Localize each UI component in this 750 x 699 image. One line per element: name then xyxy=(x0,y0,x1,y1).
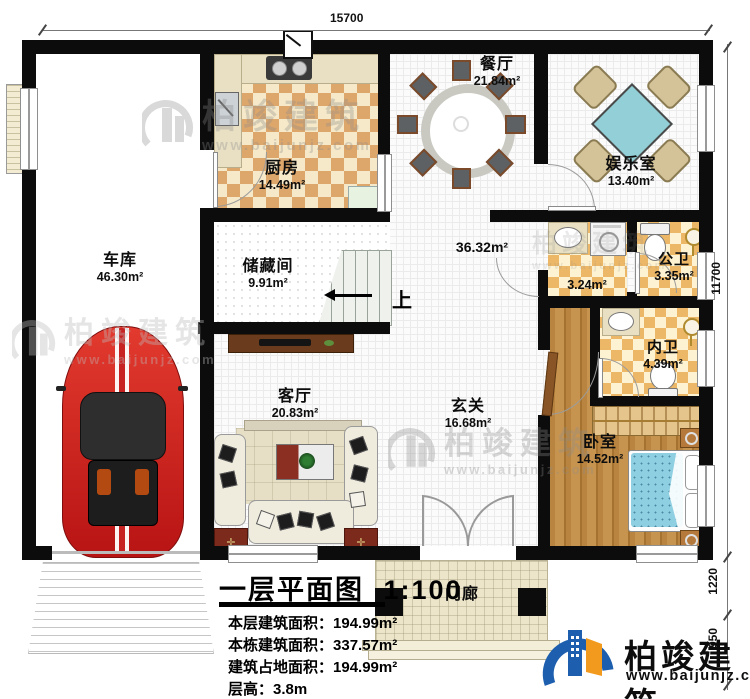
sofa-cushion xyxy=(220,471,238,489)
wall-left xyxy=(22,168,36,560)
bed-icon xyxy=(628,450,704,532)
room-label-garage: 车库 46.30m² xyxy=(97,252,144,284)
room-name: 厨房 xyxy=(259,160,306,178)
dimension-right-mid: 1220 xyxy=(706,568,720,595)
chair-icon xyxy=(452,168,471,189)
porch-column xyxy=(518,588,546,616)
chair-icon xyxy=(397,115,418,134)
sink-icon xyxy=(554,227,582,248)
wall-kitchen-dining xyxy=(378,54,390,154)
dimension-line-right xyxy=(727,44,728,690)
garage-driveway-ramp xyxy=(28,562,214,654)
room-label-storage: 储藏间 9.91m² xyxy=(242,258,293,290)
stat-row: 本栋建筑面积：337.57m² xyxy=(228,634,397,655)
wall-dining-entertainment xyxy=(534,54,548,164)
room-area: 9.91m² xyxy=(242,276,293,290)
stat-label: 建筑占地面积： xyxy=(228,659,333,676)
kitchen-sink-icon xyxy=(215,92,239,126)
wall-right xyxy=(699,150,713,252)
room-area: 20.83m² xyxy=(272,406,319,420)
car-windshield xyxy=(80,392,166,460)
stat-row: 建筑占地面积：194.99m² xyxy=(228,656,397,677)
floor-plan: 15700 11700 1220 950 xyxy=(0,0,750,699)
car-mirror xyxy=(178,386,188,391)
window-bedroom-bottom xyxy=(636,545,698,563)
wall-bath-mid xyxy=(538,296,699,308)
room-label-public-bath: 公卫 3.35m² xyxy=(654,252,694,283)
wall-right xyxy=(699,40,713,85)
room-label-living: 客厅 20.83m² xyxy=(272,388,319,420)
sofa-cushion xyxy=(297,511,314,528)
plant-icon xyxy=(299,453,315,469)
room-label-dining: 餐厅 21.84m² xyxy=(474,56,521,88)
flue-box xyxy=(283,30,313,59)
garage-door-line xyxy=(52,551,200,554)
wall-garage-kitchen xyxy=(200,54,214,150)
coffee-table-icon xyxy=(276,444,334,480)
tv-icon xyxy=(259,339,311,346)
window-entertainment xyxy=(697,85,715,152)
wall-bottom xyxy=(696,546,713,560)
wall-hall-corridor xyxy=(538,270,548,296)
wall-corridor-publicbath xyxy=(627,222,637,252)
nightstand-icon xyxy=(680,428,701,448)
room-name: 娱乐室 xyxy=(605,156,656,174)
room-name: 卧室 xyxy=(577,434,624,452)
nightstand-knob xyxy=(685,432,698,445)
chair-icon xyxy=(452,60,471,81)
engine-detail xyxy=(97,469,111,495)
wall-garage-hall xyxy=(200,208,214,546)
dimension-line-top xyxy=(42,30,710,31)
car-mirror xyxy=(56,386,66,391)
room-label-corridor-area: 3.24m² xyxy=(567,278,607,292)
company-logo-text: 柏竣建筑 xyxy=(624,630,750,699)
stat-label: 本栋建筑面积： xyxy=(228,637,333,654)
heater-pipe xyxy=(690,334,692,346)
stairs-arrow-head xyxy=(324,289,335,301)
stat-row: 本层建筑面积：194.99m² xyxy=(228,612,397,633)
room-area: 3.24m² xyxy=(567,278,607,292)
room-name: 车库 xyxy=(97,252,144,270)
table-center xyxy=(453,116,469,132)
room-area: 14.49m² xyxy=(259,178,306,192)
tv-console xyxy=(228,334,354,353)
wall-top xyxy=(22,40,713,54)
window-garage-left xyxy=(20,88,38,170)
window-bedroom-right xyxy=(697,465,715,527)
dimension-right-main: 11700 xyxy=(709,262,723,295)
room-area: 16.68m² xyxy=(445,416,492,430)
kitchen-pass-window xyxy=(377,154,392,212)
wall-bottom xyxy=(316,546,420,560)
flue-mark xyxy=(286,34,301,46)
room-area: 4.39m² xyxy=(643,357,683,371)
wall-bottom xyxy=(200,546,228,560)
kitchen-door-leaf xyxy=(213,152,218,208)
stat-row: 层高：3.8m xyxy=(228,678,307,699)
title-underline xyxy=(219,602,385,607)
wall-privatebath-bottom xyxy=(590,396,699,406)
burner-icon xyxy=(292,61,307,76)
room-name: 储藏间 xyxy=(242,258,293,276)
chair-icon xyxy=(505,115,526,134)
wall-bath-top xyxy=(490,210,713,222)
plan-title-text: 一层平面图 xyxy=(219,575,364,605)
room-name: 玄关 xyxy=(445,398,492,416)
stove-icon xyxy=(266,56,312,80)
room-label-entertainment: 娱乐室 13.40m² xyxy=(605,156,656,188)
room-area: 21.84m² xyxy=(474,74,521,88)
wall-right xyxy=(699,385,713,465)
stat-value: 337.57m² xyxy=(333,637,397,654)
wardrobe-rod xyxy=(593,420,700,422)
room-name: 餐厅 xyxy=(474,56,521,74)
stairs-arrow-line xyxy=(334,294,372,297)
room-label-kitchen: 厨房 14.49m² xyxy=(259,160,306,192)
stat-label: 本层建筑面积： xyxy=(228,615,333,632)
room-name: 内卫 xyxy=(643,340,683,357)
entry-double-door xyxy=(418,486,518,547)
wall-right xyxy=(699,298,713,330)
room-name: 公卫 xyxy=(654,252,694,269)
wall-foyer-bedroom xyxy=(538,306,550,350)
room-area: 13.40m² xyxy=(605,174,656,188)
burner-icon xyxy=(272,61,287,76)
wall-bottom xyxy=(22,546,52,560)
washer-drum xyxy=(599,232,619,252)
sofa-cushion xyxy=(349,491,366,508)
washer-panel xyxy=(593,225,621,228)
private-bath-door-leaf xyxy=(598,358,603,398)
car-icon xyxy=(62,326,182,556)
entertainment-door-leaf xyxy=(548,206,596,211)
room-area: 36.32m² xyxy=(456,240,508,256)
wall-left xyxy=(22,40,36,88)
wall-storage-living xyxy=(198,322,390,334)
sink-icon xyxy=(608,312,634,331)
public-bath-door-leaf xyxy=(635,252,640,294)
stairs-up-label: 上 xyxy=(392,284,412,313)
sink-detail xyxy=(218,99,234,116)
company-logo-icon xyxy=(538,618,620,696)
room-area: 46.30m² xyxy=(97,270,144,284)
dimension-top-value: 15700 xyxy=(330,11,363,25)
car-engine xyxy=(88,460,158,526)
room-area: 3.35m² xyxy=(654,269,694,283)
engine-detail xyxy=(135,469,149,495)
room-label-foyer: 玄关 16.68m² xyxy=(445,398,492,430)
stat-value: 3.8m xyxy=(273,681,307,698)
wall-bottom xyxy=(516,546,636,560)
stat-value: 194.99m² xyxy=(333,615,397,632)
window-private-bath xyxy=(697,330,715,387)
stat-value: 194.99m² xyxy=(333,659,397,676)
room-area: 14.52m² xyxy=(577,452,624,466)
washing-machine-icon xyxy=(590,222,626,256)
room-name: 客厅 xyxy=(272,388,319,406)
company-logo-url: www.baijunjz.com xyxy=(626,668,750,684)
wall-kitchen-storage xyxy=(214,208,390,222)
room-label-private-bath: 内卫 4.39m² xyxy=(643,340,683,371)
room-label-bedroom: 卧室 14.52m² xyxy=(577,434,624,466)
room-label-hall-area: 36.32m² xyxy=(456,240,508,256)
wall-foyer-bedroom xyxy=(538,415,550,546)
stat-label: 层高： xyxy=(228,681,273,698)
plant-icon xyxy=(324,340,334,346)
plan-scale: 1:100 xyxy=(384,575,463,605)
window-living xyxy=(228,545,318,563)
